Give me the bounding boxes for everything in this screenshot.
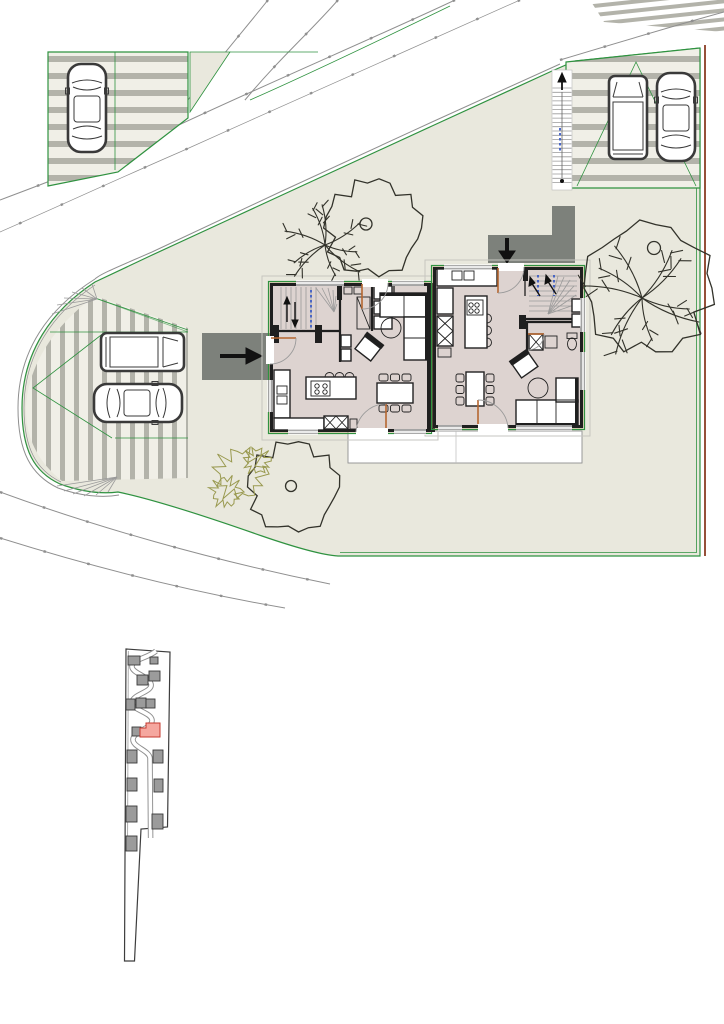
- window: [516, 425, 572, 430]
- locator-building: [146, 699, 155, 708]
- window: [267, 380, 272, 412]
- window: [394, 429, 426, 434]
- locator-building: [128, 656, 140, 665]
- car-icon: [94, 382, 182, 425]
- locator-building: [126, 699, 135, 710]
- locator-building: [152, 814, 163, 829]
- neighbor-parking-strip: [590, 0, 724, 32]
- window: [580, 298, 585, 332]
- window: [288, 429, 318, 434]
- junction-green-island: [190, 52, 318, 112]
- locator-building: [137, 675, 148, 685]
- entry-path-left-house: [202, 333, 270, 380]
- window: [296, 280, 344, 285]
- kitchen-island: [465, 296, 492, 348]
- car-icon: [655, 73, 698, 161]
- locator-building: [127, 778, 137, 791]
- locator-building: [149, 671, 160, 681]
- parking-area-top-left: [48, 52, 188, 186]
- locator-building: [153, 750, 163, 763]
- locator-building: [136, 698, 146, 708]
- kitchen-island: [306, 373, 356, 400]
- locator-building: [126, 836, 137, 851]
- car-icon: [101, 333, 184, 371]
- window: [444, 264, 492, 269]
- window: [438, 425, 462, 430]
- locator-building: [150, 657, 158, 664]
- site-plan-drawing: [0, 0, 724, 1024]
- locator-building: [154, 779, 163, 792]
- locator-site-strip: [125, 649, 171, 961]
- locator-map: [125, 649, 171, 961]
- exterior-staircase: [552, 70, 572, 190]
- house-right: [432, 266, 585, 430]
- locator-building: [127, 750, 137, 763]
- car-icon: [609, 76, 647, 159]
- window: [392, 280, 424, 285]
- house-left: [269, 282, 436, 434]
- window: [580, 352, 585, 390]
- parking-area-top-right: [566, 48, 700, 188]
- car-icon: [66, 64, 109, 152]
- locator-building: [126, 806, 137, 822]
- site-plan-svg: [0, 0, 724, 1024]
